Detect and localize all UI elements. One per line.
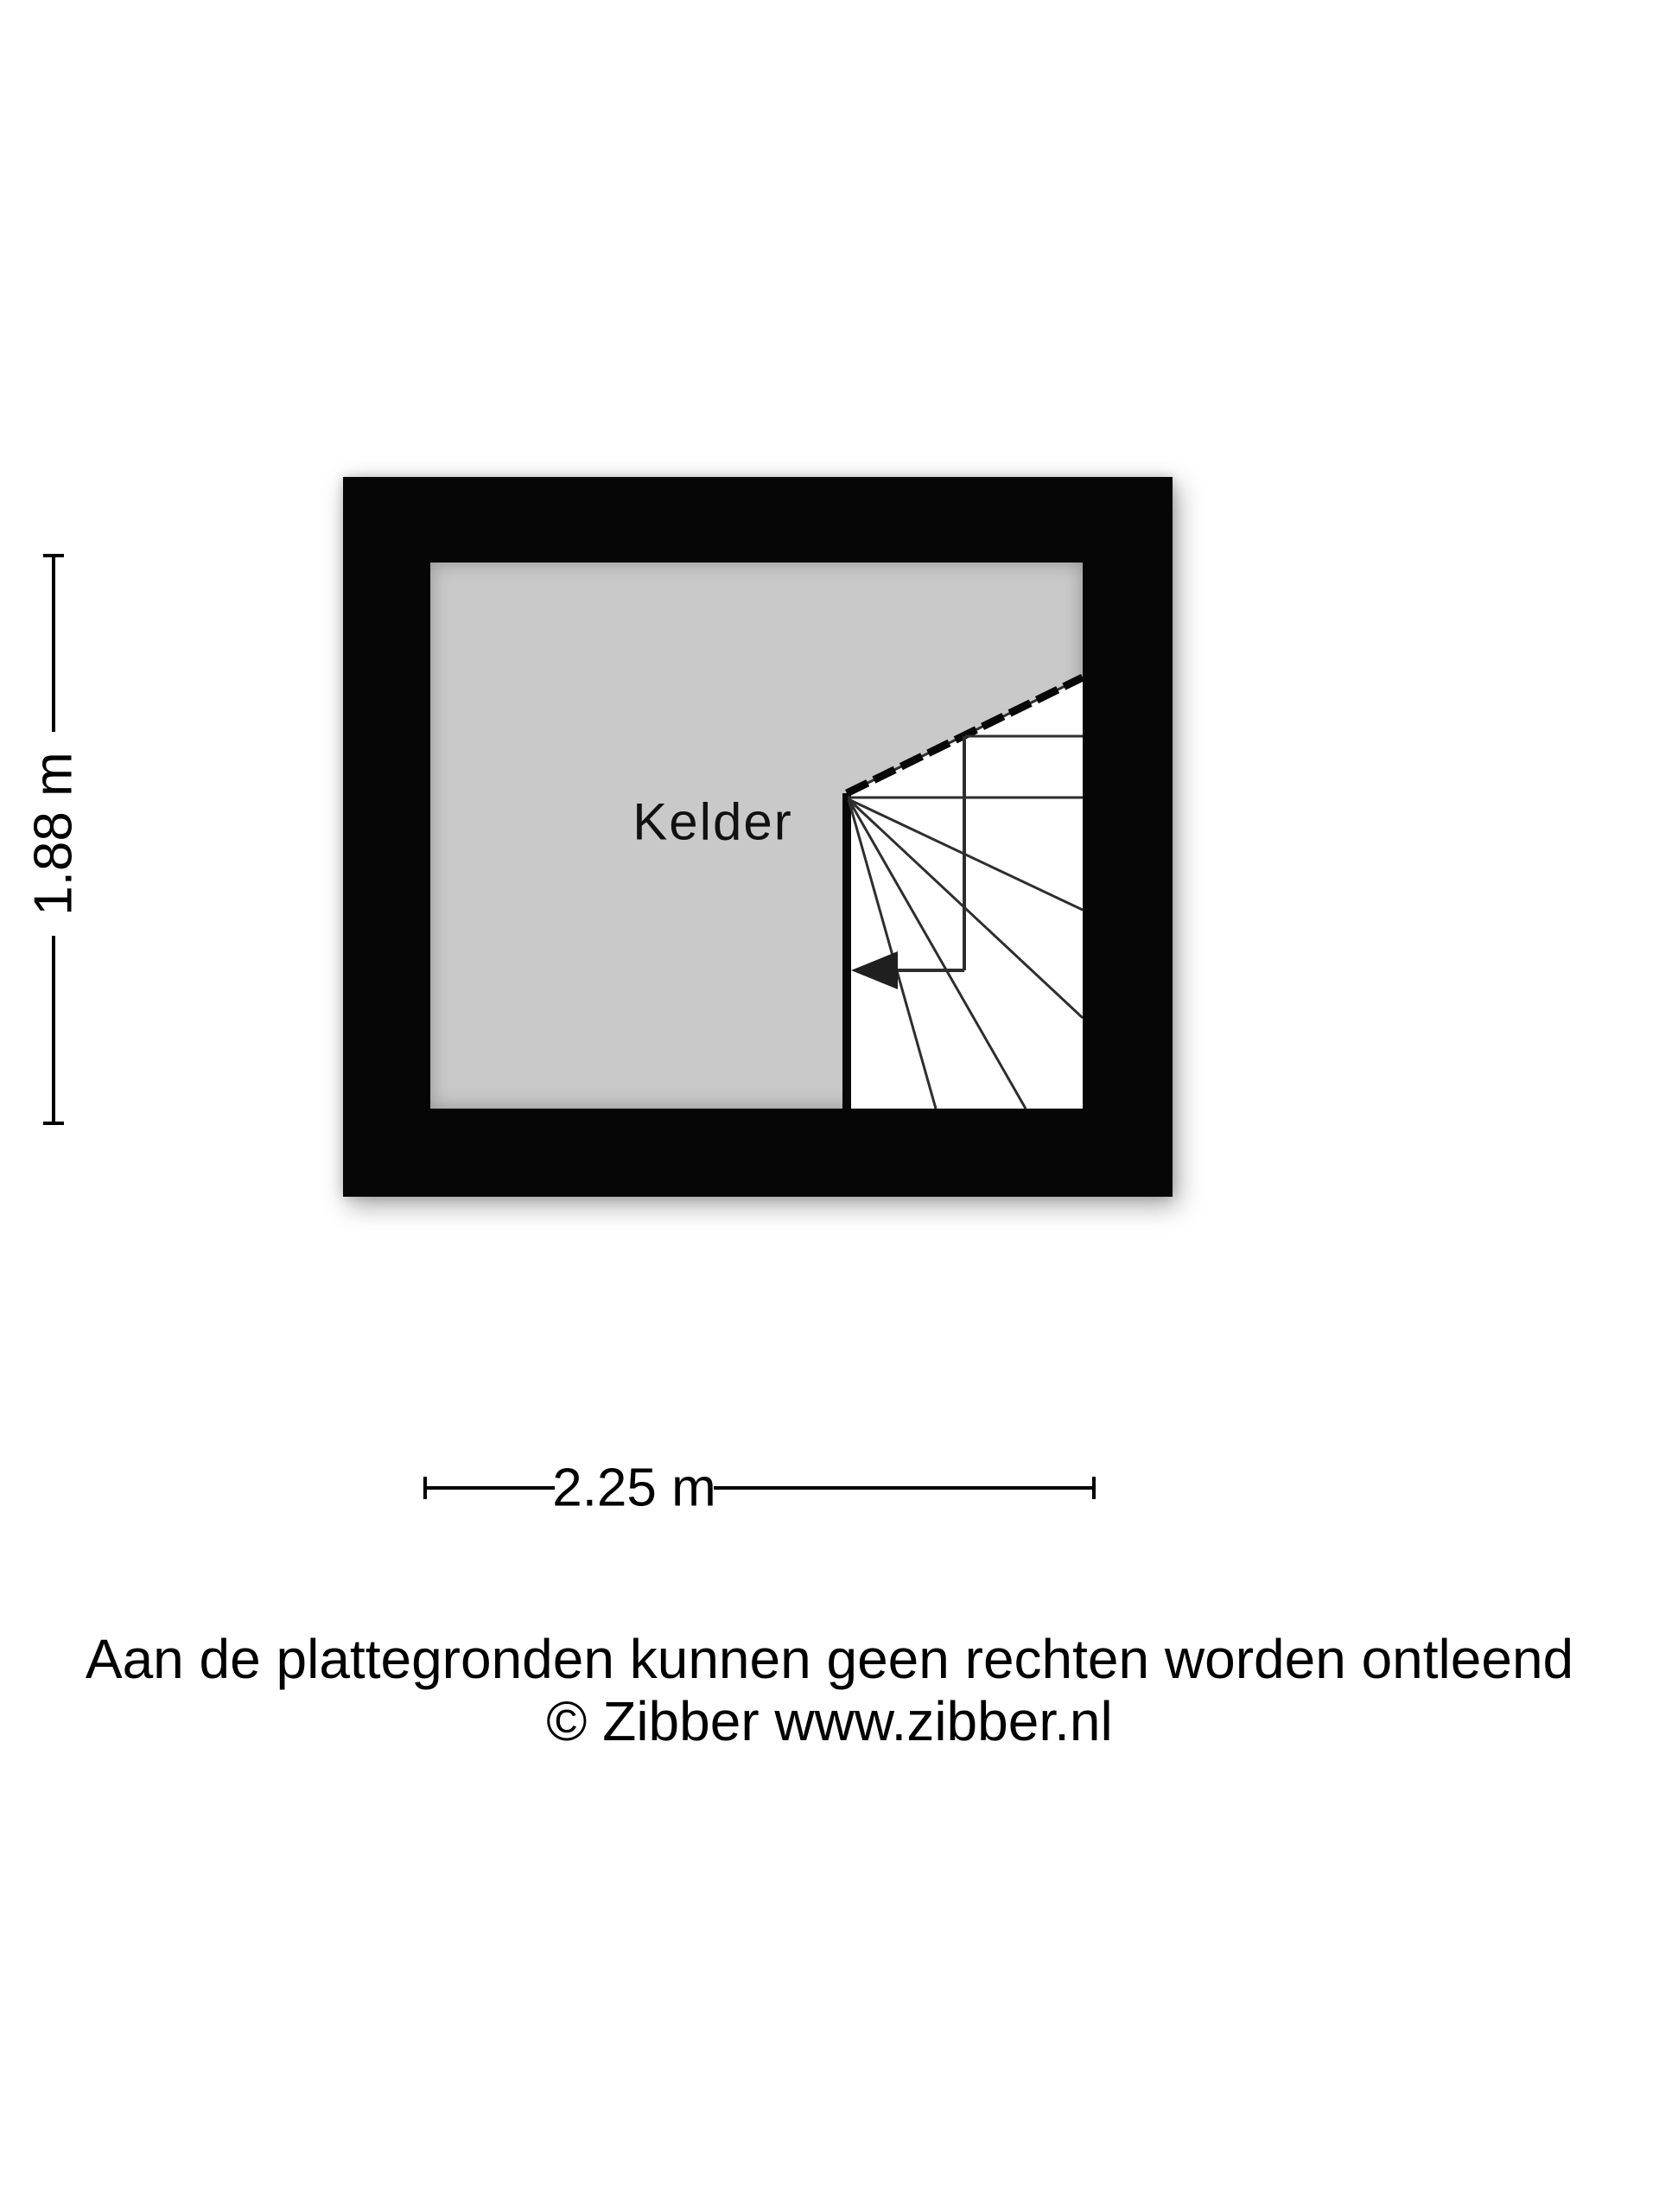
height-dimension-label: 1.88 m — [23, 752, 85, 916]
dimension-line — [714, 1486, 1094, 1490]
floorplan-page: 1.88 m Kelder — [0, 0, 1659, 2212]
floorplan-drawing: Kelder — [343, 477, 1173, 1197]
disclaimer: Aan de plattegronden kunnen geen rechten… — [0, 1628, 1659, 1752]
dimension-line — [52, 556, 55, 732]
disclaimer-line: Aan de plattegronden kunnen geen rechten… — [0, 1628, 1659, 1690]
room-label: Kelder — [632, 792, 792, 852]
width-dimension-label: 2.25 m — [552, 1458, 716, 1519]
copyright-line: © Zibber www.zibber.nl — [0, 1690, 1659, 1752]
dimension-tick — [43, 1122, 64, 1125]
dimension-tick — [1092, 1477, 1096, 1499]
dimension-line — [425, 1486, 555, 1490]
dimension-line — [52, 936, 55, 1123]
